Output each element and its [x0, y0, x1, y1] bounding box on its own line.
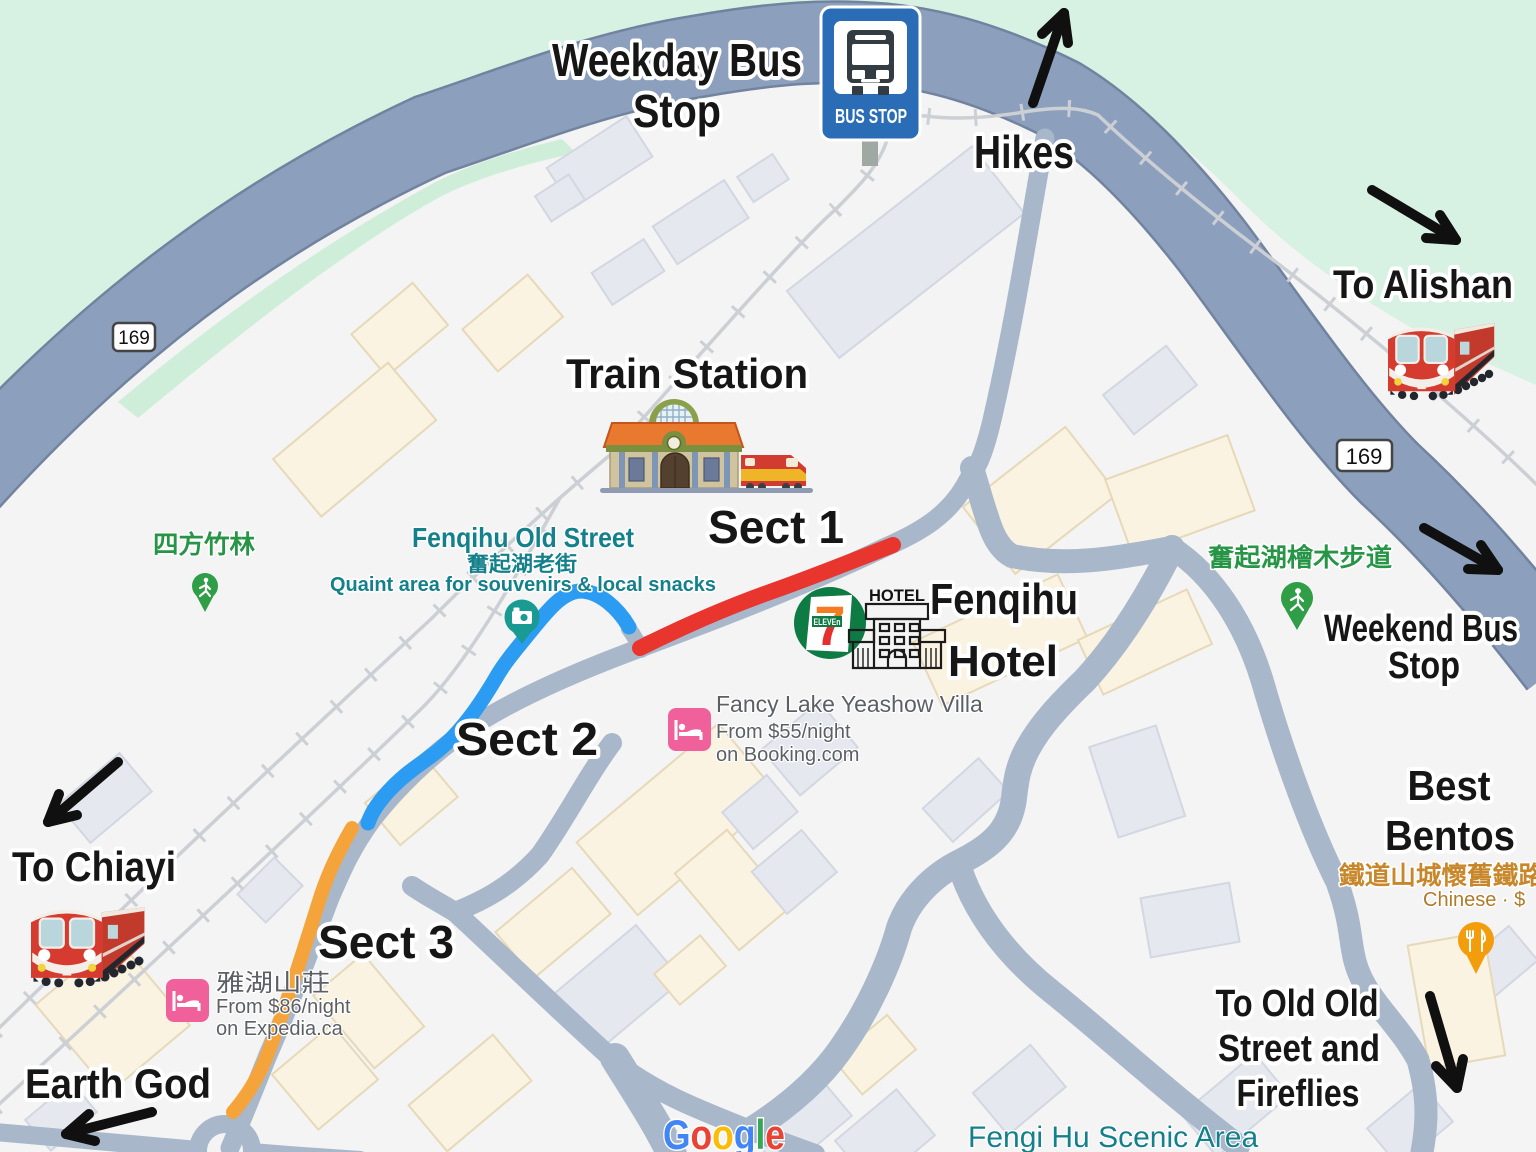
- svg-text:Best: Best: [1408, 762, 1491, 809]
- svg-text:Weekday Bus: Weekday Bus: [552, 34, 802, 86]
- svg-text:on Booking.com: on Booking.com: [716, 744, 859, 766]
- svg-text:To Chiayi: To Chiayi: [12, 843, 176, 890]
- svg-text:四方竹林: 四方竹林: [153, 530, 255, 559]
- svg-text:Bentos: Bentos: [1385, 812, 1515, 859]
- svg-text:Train Station: Train Station: [566, 350, 808, 397]
- svg-text:Google: Google: [663, 1111, 785, 1152]
- svg-text:BUS STOP: BUS STOP: [835, 106, 907, 128]
- svg-text:From $86/night: From $86/night: [216, 996, 351, 1018]
- svg-text:鐵道山城懷舊鐵路: 鐵道山城懷舊鐵路: [1339, 861, 1536, 890]
- svg-text:From $55/night: From $55/night: [716, 721, 851, 743]
- svg-text:雅湖山莊: 雅湖山莊: [216, 970, 330, 997]
- svg-text:Fireflies: Fireflies: [1237, 1073, 1360, 1115]
- svg-text:Weekend Bus: Weekend Bus: [1324, 608, 1518, 650]
- svg-text:To Alishan: To Alishan: [1333, 263, 1513, 307]
- svg-text:Fancy Lake Yeashow Villa: Fancy Lake Yeashow Villa: [716, 691, 983, 717]
- svg-text:169: 169: [118, 328, 150, 349]
- svg-text:Sect 1: Sect 1: [708, 501, 844, 553]
- svg-text:Sect 2: Sect 2: [456, 713, 598, 765]
- svg-text:Stop: Stop: [633, 85, 721, 137]
- svg-text:Street and: Street and: [1218, 1028, 1380, 1070]
- svg-text:on Expedia.ca: on Expedia.ca: [216, 1018, 344, 1040]
- svg-text:Hotel: Hotel: [948, 637, 1058, 686]
- svg-text:Sect 3: Sect 3: [318, 916, 454, 968]
- svg-text:Chinese · $: Chinese · $: [1423, 889, 1525, 911]
- svg-text:Fenqihu Old Street: Fenqihu Old Street: [412, 522, 634, 553]
- svg-text:Earth God: Earth God: [25, 1060, 211, 1107]
- svg-text:Fengi Hu Scenic Area: Fengi Hu Scenic Area: [968, 1121, 1258, 1152]
- svg-text:Quaint area for souvenirs & lo: Quaint area for souvenirs & local snacks: [330, 573, 716, 596]
- svg-text:169: 169: [1346, 444, 1383, 469]
- svg-text:To Old Old: To Old Old: [1216, 983, 1379, 1025]
- svg-text:奮起湖檜木步道: 奮起湖檜木步道: [1208, 543, 1392, 572]
- svg-text:ELEVEn: ELEVEn: [814, 617, 841, 627]
- svg-text:Hikes: Hikes: [974, 126, 1074, 178]
- svg-text:Stop: Stop: [1388, 645, 1460, 687]
- svg-text:HOTEL: HOTEL: [869, 586, 925, 605]
- svg-text:Fenqihu: Fenqihu: [930, 575, 1078, 624]
